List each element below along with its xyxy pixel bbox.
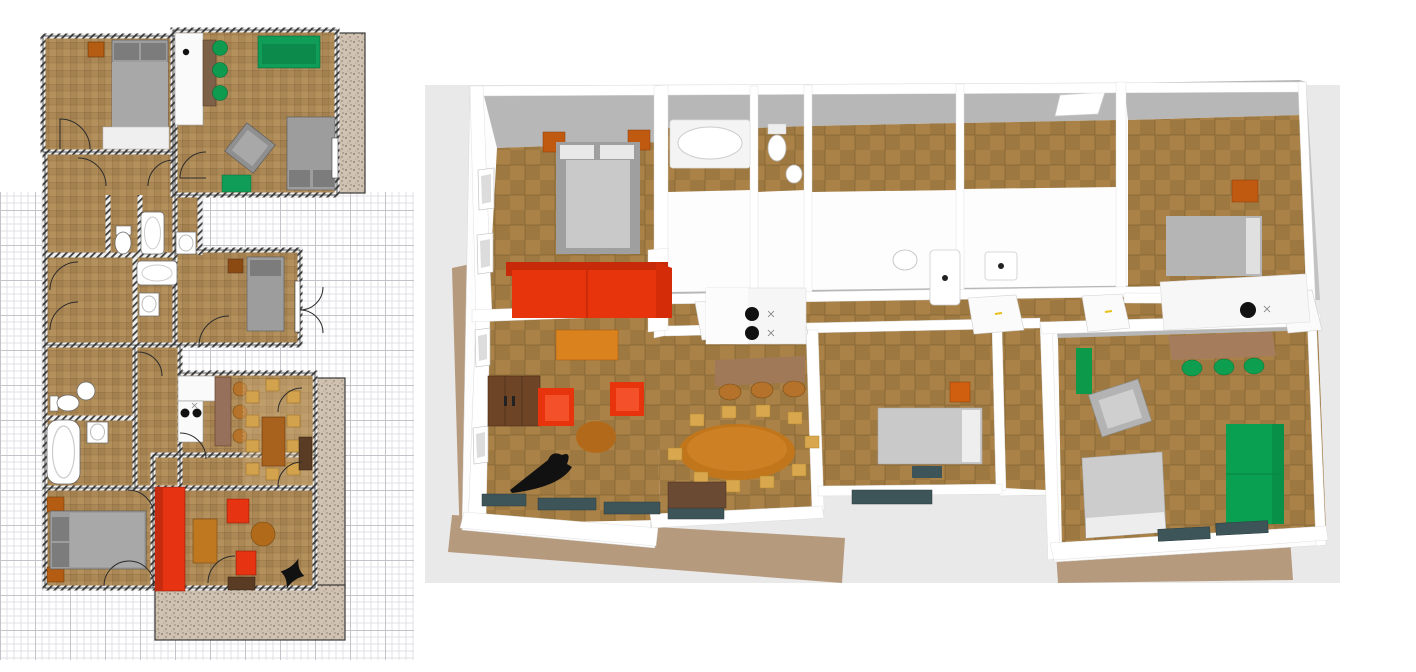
double-bed <box>556 142 640 254</box>
toilet[interactable] <box>115 232 131 254</box>
green-side-table[interactable] <box>222 175 251 192</box>
kitchenette-counter <box>1160 274 1310 330</box>
wc-1-2d <box>115 226 131 254</box>
plan-2d-panel[interactable] <box>0 30 414 660</box>
nightstand[interactable] <box>88 42 104 57</box>
red-armchair <box>610 382 644 416</box>
bar-island[interactable] <box>215 377 231 446</box>
nightstand <box>1232 180 1258 202</box>
single-bed <box>878 408 982 464</box>
dining-table[interactable] <box>262 417 285 466</box>
toilet <box>768 135 786 161</box>
bathtub <box>678 127 742 159</box>
burner <box>1240 302 1256 318</box>
corner-sink <box>786 165 802 183</box>
desk <box>1168 332 1276 360</box>
sideboard[interactable] <box>299 437 312 470</box>
sink <box>893 250 917 270</box>
single-bed[interactable] <box>247 257 284 331</box>
wall-cabinet <box>488 376 540 426</box>
double-bed[interactable] <box>50 511 146 569</box>
red-armchair <box>538 388 574 426</box>
rug[interactable] <box>103 127 169 149</box>
tv-stand[interactable] <box>228 577 255 590</box>
red-armchair[interactable] <box>227 499 249 523</box>
toilet[interactable] <box>57 395 79 411</box>
counter[interactable] <box>178 376 215 401</box>
burner <box>183 49 189 55</box>
floor-plan-workspace <box>0 0 1416 672</box>
burner <box>745 307 759 321</box>
bed <box>1082 452 1166 538</box>
counter[interactable] <box>178 401 203 442</box>
burner <box>745 326 759 340</box>
window <box>295 281 300 332</box>
nightstand <box>950 382 970 402</box>
red-armchair[interactable] <box>236 551 256 575</box>
sink[interactable] <box>77 382 95 400</box>
kitchenette-counter[interactable] <box>175 33 203 125</box>
nightstand[interactable] <box>228 259 243 273</box>
window <box>332 138 338 178</box>
radiator <box>912 466 942 478</box>
sideboard <box>668 482 726 508</box>
burner <box>193 409 202 418</box>
skylight <box>1055 92 1105 116</box>
green-stools <box>1182 358 1264 376</box>
double-bed <box>1166 216 1262 276</box>
coffee-table[interactable] <box>193 519 217 563</box>
round-table <box>576 421 616 453</box>
green-bookcase <box>1076 348 1092 394</box>
view-3d-panel[interactable] <box>425 80 1340 583</box>
nightstand[interactable] <box>47 497 64 512</box>
double-bed[interactable] <box>112 40 168 132</box>
round-table[interactable] <box>251 522 275 546</box>
workspace-canvas <box>0 0 1416 672</box>
green-sofa <box>1226 424 1284 524</box>
bathroom-top-3d <box>670 120 750 168</box>
red-sofa[interactable] <box>155 487 185 591</box>
bedroom-top-left-3d <box>543 130 650 254</box>
radiator <box>852 490 932 504</box>
coffee-table <box>556 330 618 360</box>
bar-stools-green[interactable] <box>213 41 228 101</box>
green-sofa[interactable] <box>258 36 320 68</box>
bar-stools <box>719 381 805 400</box>
burner <box>181 409 190 418</box>
toilet-tank <box>768 124 786 134</box>
red-sofa <box>506 262 672 318</box>
double-bed[interactable] <box>287 117 335 190</box>
